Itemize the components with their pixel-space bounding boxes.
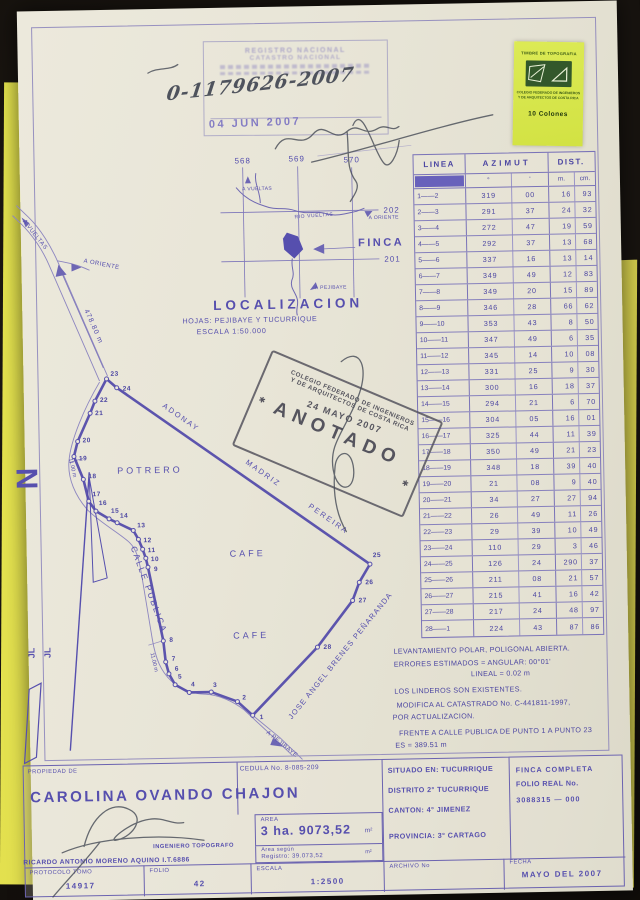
vertex-label: 4	[191, 681, 195, 688]
survey-row: 28——1224438786	[422, 618, 603, 637]
loc-a-oriente: A ORIENTE	[369, 215, 400, 222]
azimut-min-cell: 08	[517, 475, 554, 491]
vertex-dot	[81, 477, 85, 481]
linea-cell: 21——22	[420, 508, 472, 524]
loc-finca: FINCA	[358, 236, 404, 249]
azimut-min-cell: 21	[516, 395, 553, 411]
azimut-deg-cell: 26	[472, 507, 518, 523]
distrito-value: DISTRITO 2° TUCURRIQUE	[388, 784, 489, 795]
azimut-min-cell: 14	[515, 347, 552, 363]
subheader-deg: °	[466, 173, 512, 187]
cedula-value: CEDULA No. 8-085-209	[240, 764, 319, 772]
propiedad-label: PROPIEDAD DE	[28, 769, 78, 776]
provincia-value: PROVINCIA: 3° CARTAGO	[389, 830, 487, 841]
vertex-label: 26	[365, 579, 373, 586]
linea-cell: 24——25	[421, 556, 473, 572]
dist-m-cell: 11	[555, 506, 581, 521]
vertex-dot	[167, 672, 171, 676]
linea-cell: 8——9	[416, 300, 468, 316]
azimut-min-cell: 49	[514, 267, 551, 283]
timbre-logo	[525, 60, 571, 87]
vertex-label: 8	[169, 637, 173, 644]
azimut-deg-cell: 319	[466, 187, 512, 203]
vertex-label: 22	[100, 397, 108, 404]
dist-m-cell: 39	[554, 458, 580, 473]
localization-parcel-blob	[283, 232, 303, 258]
linea-cell: 25——26	[421, 572, 473, 588]
dist-cm-cell: 42	[582, 586, 602, 601]
azimut-deg-cell: 294	[470, 395, 516, 411]
dist-cm-cell: 93	[575, 186, 595, 201]
dist-m-cell: 6	[553, 394, 579, 409]
grid-label-201: 201	[384, 255, 401, 264]
azimut-min-cell: 37	[512, 203, 549, 219]
dist-cm-cell: 59	[576, 218, 596, 233]
header-azimut: AZIMUT	[465, 153, 548, 174]
form-divider	[509, 758, 512, 859]
loc-scale: ESCALA 1:50.000	[197, 326, 267, 336]
form-divider	[250, 863, 252, 894]
dist-cm-cell: 89	[577, 282, 597, 297]
azimut-min-cell: 16	[516, 379, 553, 395]
note-line: MODIFICA AL CATASTRADO No. C-441811-1997…	[396, 697, 570, 709]
dist-m-cell: 24	[549, 202, 575, 217]
vertex-dot	[161, 639, 165, 643]
azimut-deg-cell: 217	[474, 603, 520, 619]
vertex-dot	[164, 660, 168, 664]
dist-cm-cell: 30	[578, 362, 598, 377]
vertex-label: 17	[93, 491, 101, 498]
map-a-pejibaye: A PEJIBAYE	[265, 730, 299, 759]
anotado-star-icon: ✱	[400, 478, 410, 489]
vertex-dot	[131, 528, 135, 532]
timbre-org-line2: Y DE ARQUITECTOS DE COSTA RICA	[513, 95, 583, 101]
dist-cm-cell: 39	[579, 426, 599, 441]
vertex-dot	[351, 598, 355, 602]
linea-cell: 26——27	[421, 588, 473, 604]
dist-cm-cell: 32	[575, 202, 595, 217]
escala-value: 1:2500	[311, 877, 345, 887]
grid-label-568: 568	[234, 156, 251, 165]
protocolo-label: PROTOCOLO TOMO	[30, 869, 93, 876]
registry-stamp-line2: CATASTRO NACIONAL	[204, 54, 387, 63]
subheader-m: m.	[549, 172, 575, 185]
vertex-label: 13	[137, 522, 145, 529]
vertex-label: 23	[110, 371, 118, 378]
dist-cm-cell: 14	[576, 250, 596, 265]
vertex-dot	[115, 386, 119, 390]
linea-cell: 4——5	[415, 236, 467, 252]
note-line: FRENTE A CALLE PUBLICA DE PUNTO 1 A PUNT…	[399, 725, 592, 738]
azimut-deg-cell: 29	[472, 523, 518, 539]
subheader-linea-fill	[414, 174, 466, 188]
vertex-label: 9	[154, 566, 158, 573]
vertex-label: 1	[260, 714, 264, 721]
dist-cm-cell: 70	[579, 394, 599, 409]
owner-name: CAROLINA OVANDO CHAJON	[30, 784, 300, 806]
timbre-sticker: TIMBRE DE TOPOGRAFIA COLEGIO FEDERADO DE…	[513, 41, 585, 146]
finca-line2: FOLIO REAL No.	[516, 778, 579, 788]
folio-label: FOLIO	[149, 868, 169, 874]
fecha-value: MAYO DEL 2007	[522, 869, 603, 879]
azimut-min-cell: 05	[516, 411, 553, 427]
timbre-logo-art	[525, 60, 571, 87]
vertex-label: 25	[373, 552, 381, 559]
azimut-min-cell: 18	[517, 459, 554, 475]
vertex-dot	[93, 399, 97, 403]
dist-cm-cell: 35	[578, 330, 598, 345]
vertex-label: 14	[120, 513, 128, 520]
dist-m-cell: 3	[556, 538, 582, 553]
vertex-label: 21	[95, 410, 103, 417]
dist-m-cell: 12	[551, 266, 577, 281]
linea-cell: 3——4	[415, 220, 467, 236]
dist-cm-cell: 46	[582, 538, 602, 553]
vertex-label: 7	[172, 656, 176, 663]
azimut-deg-cell: 211	[473, 571, 519, 587]
dist-m-cell: 16	[556, 586, 582, 601]
situado-value: SITUADO EN: TUCURRIQUE	[388, 764, 494, 775]
linea-cell: 1——2	[414, 188, 466, 204]
vertex-label: 16	[99, 500, 107, 507]
azimut-min-cell: 08	[519, 571, 556, 587]
header-linea: LINEA	[413, 154, 465, 174]
dist-m-cell: 87	[557, 618, 583, 634]
dist-cm-cell: 37	[582, 554, 602, 569]
vertex-dot	[104, 377, 108, 381]
azimut-deg-cell: 224	[474, 619, 520, 636]
dist-m-cell: 66	[551, 298, 577, 313]
dist-m-cell: 15	[551, 282, 577, 297]
linea-cell: 13——14	[418, 380, 470, 396]
azimut-deg-cell: 292	[467, 235, 513, 251]
road-width-2: 11.00 m	[149, 652, 159, 673]
dist-cm-cell: 68	[576, 234, 596, 249]
linea-cell: 7——8	[416, 284, 468, 300]
subheader-cm: cm.	[575, 172, 595, 185]
linea-cell: 2——3	[414, 204, 466, 220]
vertex-dot	[115, 521, 119, 525]
linea-cell: 5——6	[415, 252, 467, 268]
note-line: LOS LINDEROS SON EXISTENTES.	[394, 684, 522, 695]
vertex-dot	[136, 537, 140, 541]
azimut-min-cell: 28	[514, 299, 551, 315]
dist-cm-cell: 23	[580, 442, 600, 457]
azimut-deg-cell: 337	[467, 251, 513, 267]
dist-cm-cell: 49	[581, 522, 601, 537]
vertex-dot	[209, 690, 213, 694]
area-registro-line1: Area según	[261, 847, 294, 854]
dist-m-cell: 9	[552, 362, 578, 377]
landuse-cafe-2: CAFE	[233, 630, 269, 641]
vertex-dot	[76, 439, 80, 443]
dist-m-cell: 48	[557, 602, 583, 617]
dist-cm-cell: 62	[577, 298, 597, 313]
area-label: AREA	[261, 817, 279, 823]
linea-cell: 20——21	[420, 492, 472, 508]
scanned-document-scene: 1234567891011121314151617181920212223242…	[0, 0, 640, 900]
azimut-deg-cell: 110	[473, 539, 519, 555]
dist-cm-cell: 08	[578, 346, 598, 361]
vertex-label: 11	[148, 547, 156, 554]
azimut-deg-cell: 272	[467, 219, 513, 235]
azimut-deg-cell: 34	[472, 491, 518, 507]
azimut-deg-cell: 345	[469, 347, 515, 363]
vertex-label: 5	[178, 674, 182, 681]
protocolo-value: 14917	[66, 881, 96, 891]
dist-m-cell: 9	[554, 474, 580, 489]
vertex-dot	[94, 509, 98, 513]
azimut-min-cell: 24	[520, 603, 557, 619]
dist-m-cell: 16	[553, 410, 579, 425]
note-line: ERRORES ESTIMADOS = ANGULAR: 00°01'	[394, 657, 551, 669]
azimut-min-cell: 24	[519, 555, 556, 571]
north-letter: N	[11, 467, 44, 489]
linea-cell: 11——12	[417, 348, 469, 364]
vertex-dot	[357, 580, 361, 584]
azimut-min-cell: 00	[512, 187, 549, 203]
azimut-deg-cell: 331	[469, 363, 515, 379]
vertex-label: 18	[88, 473, 96, 480]
subheader-min: '	[512, 173, 549, 187]
azimut-deg-cell: 291	[466, 203, 512, 219]
dist-m-cell: 13	[550, 234, 576, 249]
timbre-title: TIMBRE DE TOPOGRAFIA	[514, 50, 584, 56]
linea-cell: 10——11	[417, 332, 469, 348]
linea-cell: 14——15	[418, 396, 470, 412]
vertex-label: 28	[323, 644, 331, 651]
azimut-deg-cell: 348	[471, 459, 517, 475]
notes-block: LEVANTAMIENTO POLAR, POLIGONAL ABIERTA.E…	[390, 637, 614, 753]
vertex-label: 24	[123, 385, 131, 392]
dist-m-cell: 6	[552, 330, 578, 345]
fecha-label: FECHA	[509, 859, 531, 865]
azimut-deg-cell: 304	[470, 411, 516, 427]
azimut-min-cell: 29	[519, 539, 556, 555]
road-arrows	[22, 213, 284, 752]
archivo-label: ARCHIVO No	[389, 863, 430, 870]
linea-cell: 6——7	[416, 268, 468, 284]
loc-title: LOCALIZACION	[213, 295, 363, 313]
header-dist: DIST.	[548, 152, 593, 172]
landuse-cafe-1: CAFE	[230, 548, 266, 559]
vertex-dot	[368, 562, 372, 566]
azimut-min-cell: 49	[515, 331, 552, 347]
vertex-label: 19	[79, 455, 87, 462]
dist-m-cell: 8	[551, 314, 577, 329]
vertex-label: 2	[242, 694, 246, 701]
survey-table: LINEA AZIMUT DIST. ° ' m. cm. 1——2319001…	[412, 151, 604, 638]
folio-real-number: 3088315 — 000	[516, 794, 580, 804]
neighbor-pereira: PEREIRA	[307, 502, 351, 536]
localization-grid	[220, 165, 380, 300]
timbre-value: 10 Colones	[513, 110, 583, 118]
note-line: LINEAL = 0.02 m	[471, 668, 530, 678]
vertex-dot	[235, 700, 239, 704]
form-divider	[143, 865, 145, 896]
paper-crease-line	[317, 145, 411, 156]
cadastral-plan-paper: 1234567891011121314151617181920212223242…	[17, 1, 633, 900]
vertex-label: 20	[83, 437, 91, 444]
vertex-dot	[107, 517, 111, 521]
grid-label-202: 202	[383, 206, 400, 215]
dist-cm-cell: 94	[581, 490, 601, 505]
linea-cell: 9——10	[416, 316, 468, 332]
dist-m-cell: 18	[553, 378, 579, 393]
vertex-dot	[173, 683, 177, 687]
neighbor-brenes: JOSE ANGEL BRENES PEÑARANDA	[286, 590, 394, 720]
azimut-min-cell: 47	[513, 219, 550, 235]
vertex-label: 6	[175, 666, 179, 673]
form-divider	[503, 859, 505, 890]
dist-m-cell: 10	[555, 522, 581, 537]
linea-cell: 22——23	[420, 524, 472, 540]
linea-cell: 23——24	[421, 540, 473, 556]
dist-cm-cell: 97	[583, 602, 603, 617]
area-value: 3 ha. 9073,52	[261, 823, 351, 839]
vertex-label: 15	[111, 508, 119, 515]
grid-label-569: 569	[288, 154, 305, 163]
dist-cm-cell: 40	[580, 474, 600, 489]
linea-cell: 27——28	[422, 604, 474, 620]
jl-mark-1: JL	[26, 647, 36, 658]
dist-cm-cell: 57	[582, 570, 602, 585]
azimut-deg-cell: 349	[468, 283, 514, 299]
loc-a-vueltas: A VUELTAS	[242, 186, 272, 193]
area-registro-unit: m²	[365, 849, 372, 855]
dist-cm-cell: 83	[577, 266, 597, 281]
folio-value: 42	[194, 879, 206, 888]
azimut-deg-cell: 300	[470, 379, 516, 395]
dist-m-cell: 27	[555, 490, 581, 505]
azimut-min-cell: 43	[520, 619, 557, 636]
dist-cm-cell: 86	[583, 618, 603, 634]
dist-m-cell: 21	[556, 570, 582, 585]
azimut-deg-cell: 346	[468, 299, 514, 315]
azimut-min-cell: 44	[516, 427, 553, 443]
vertex-label: 27	[359, 597, 367, 604]
azimut-deg-cell: 349	[468, 267, 514, 283]
canton-value: CANTON: 4° JIMENEZ	[388, 804, 470, 815]
dist-cm-cell: 40	[580, 458, 600, 473]
area-registro-line2: Registro: 39.073,52	[261, 853, 323, 860]
survey-table-rows: 1——23190016932——32913724323——42724719594…	[414, 186, 603, 637]
vertex-label: 3	[213, 682, 217, 689]
note-line: ES = 389.51 m	[395, 740, 447, 750]
vertex-dot	[315, 645, 319, 649]
azimut-deg-cell: 347	[469, 331, 515, 347]
dist-m-cell: 16	[549, 186, 575, 201]
azimut-min-cell: 37	[513, 235, 550, 251]
vertex-dot	[251, 713, 255, 717]
loc-sheets: HOJAS: PEJIBAYE Y TUCURRIQUE	[182, 314, 317, 325]
engineer-title: INGENIERO TOPOGRAFO	[153, 843, 234, 850]
azimut-min-cell: 49	[517, 443, 554, 459]
vertex-label: 12	[143, 537, 151, 544]
azimut-min-cell: 49	[518, 507, 555, 523]
area-unit: m²	[365, 827, 373, 834]
landuse-potrero: POTRERO	[117, 465, 183, 476]
azimut-deg-cell: 21	[471, 475, 517, 491]
azimut-min-cell: 20	[514, 283, 551, 299]
linea-cell: 19——20	[419, 476, 471, 492]
north-arrow	[19, 472, 110, 764]
azimut-min-cell: 16	[513, 251, 550, 267]
azimut-deg-cell: 350	[471, 443, 517, 459]
vertex-dot	[187, 690, 191, 694]
dist-m-cell: 290	[556, 554, 582, 569]
azimut-min-cell: 39	[518, 523, 555, 539]
azimut-deg-cell: 215	[473, 587, 519, 603]
azimut-min-cell: 27	[518, 491, 555, 507]
dist-m-cell: 21	[554, 442, 580, 457]
linea-cell: 12——13	[417, 364, 469, 380]
dist-cm-cell: 01	[579, 410, 599, 425]
jl-mark-2: JL	[42, 647, 52, 658]
note-line: LEVANTAMIENTO POLAR, POLIGONAL ABIERTA.	[393, 643, 570, 655]
note-line: POR ACTUALIZACION.	[393, 711, 475, 722]
azimut-min-cell: 25	[515, 363, 552, 379]
dist-m-cell: 10	[552, 346, 578, 361]
dist-cm-cell: 37	[579, 378, 599, 393]
escala-label: ESCALA	[256, 866, 282, 872]
dist-m-cell: 13	[550, 250, 576, 265]
loc-a-pejibaye: A PEJIBAYE	[315, 285, 347, 292]
dist-m-cell: 19	[550, 218, 576, 233]
azimut-min-cell: 43	[514, 315, 551, 331]
dist-cm-cell: 50	[577, 314, 597, 329]
dist-m-cell: 11	[553, 426, 579, 441]
grid-label-570: 570	[343, 155, 360, 164]
property-form: PROPIEDAD DE CEDULA No. 8-085-209 CAROLI…	[23, 755, 625, 898]
neighbor-adonay: ADONAY	[161, 401, 202, 433]
azimut-deg-cell: 126	[473, 555, 519, 571]
loc-rio-vueltas: RIO VUELTAS	[294, 212, 333, 221]
vertex-dot	[87, 499, 91, 503]
azimut-deg-cell: 353	[468, 315, 514, 331]
finca-line1: FINCA COMPLETA	[516, 764, 594, 774]
linea-cell: 28——1	[422, 620, 474, 637]
vertex-dot	[88, 411, 92, 415]
road-edges	[12, 200, 302, 764]
azimut-min-cell: 41	[519, 587, 556, 603]
linea-cell: 18——19	[419, 460, 471, 476]
vertex-label: 10	[151, 556, 159, 563]
azimut-deg-cell: 325	[470, 427, 516, 443]
dist-cm-cell: 26	[581, 506, 601, 521]
